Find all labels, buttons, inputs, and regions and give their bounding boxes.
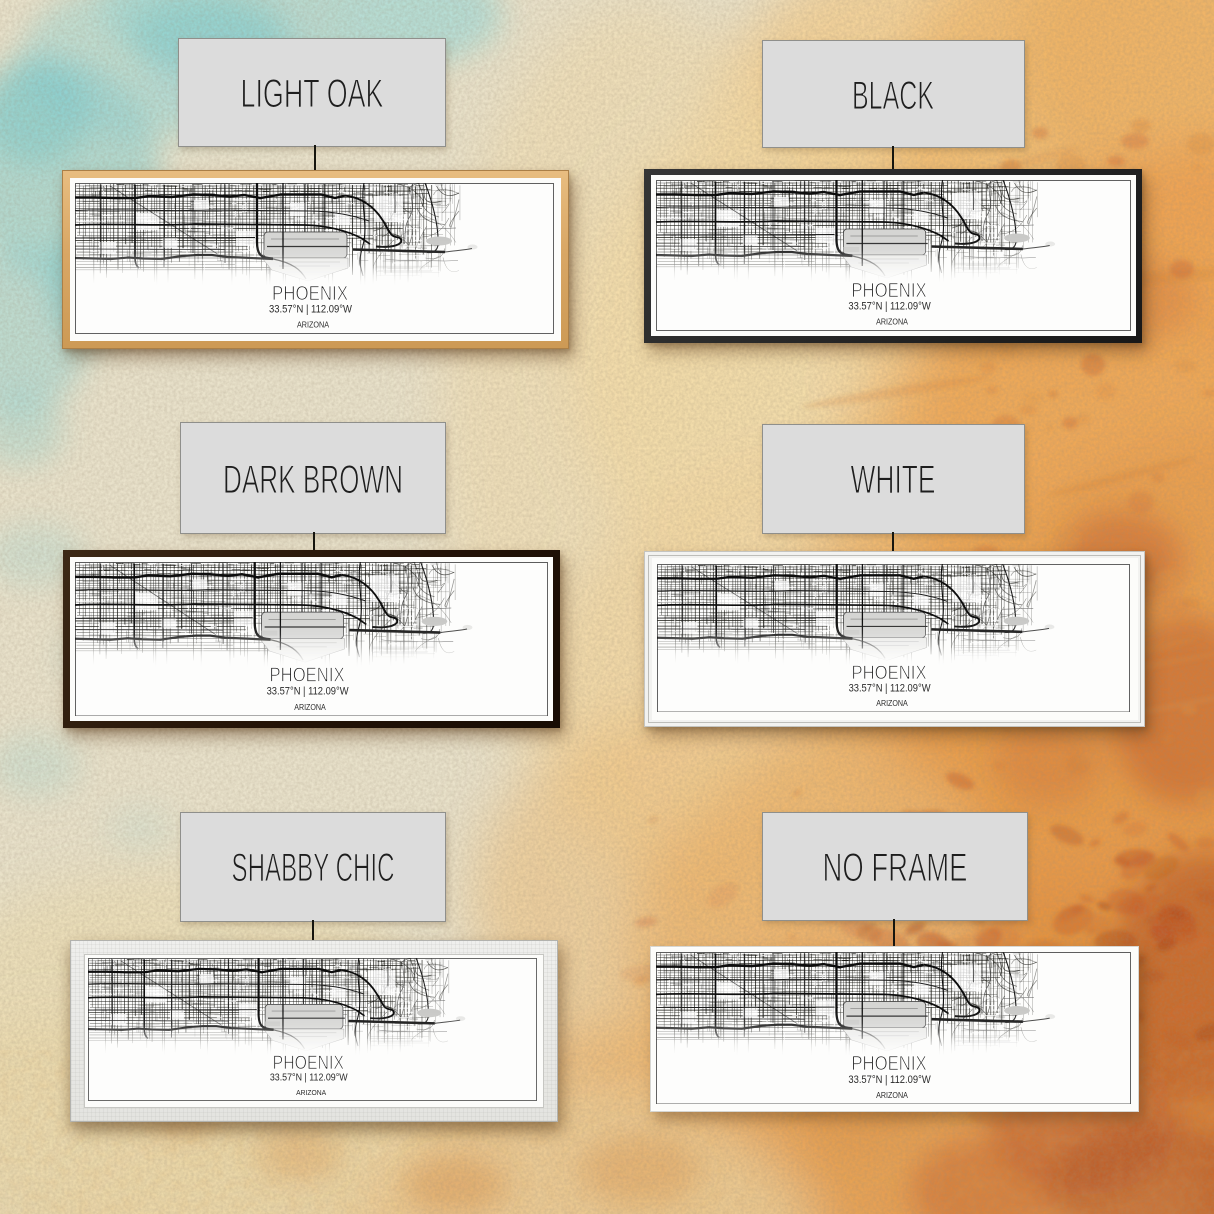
- svg-text:NO FRAME: NO FRAME: [823, 846, 968, 890]
- svg-text:BLACK: BLACK: [852, 74, 934, 118]
- svg-text:DARK BROWN: DARK BROWN: [223, 458, 403, 502]
- svg-text:WHITE: WHITE: [851, 458, 936, 502]
- svg-text:LIGHT OAK: LIGHT OAK: [241, 72, 384, 116]
- svg-text:SHABBY CHIC: SHABBY CHIC: [232, 846, 395, 890]
